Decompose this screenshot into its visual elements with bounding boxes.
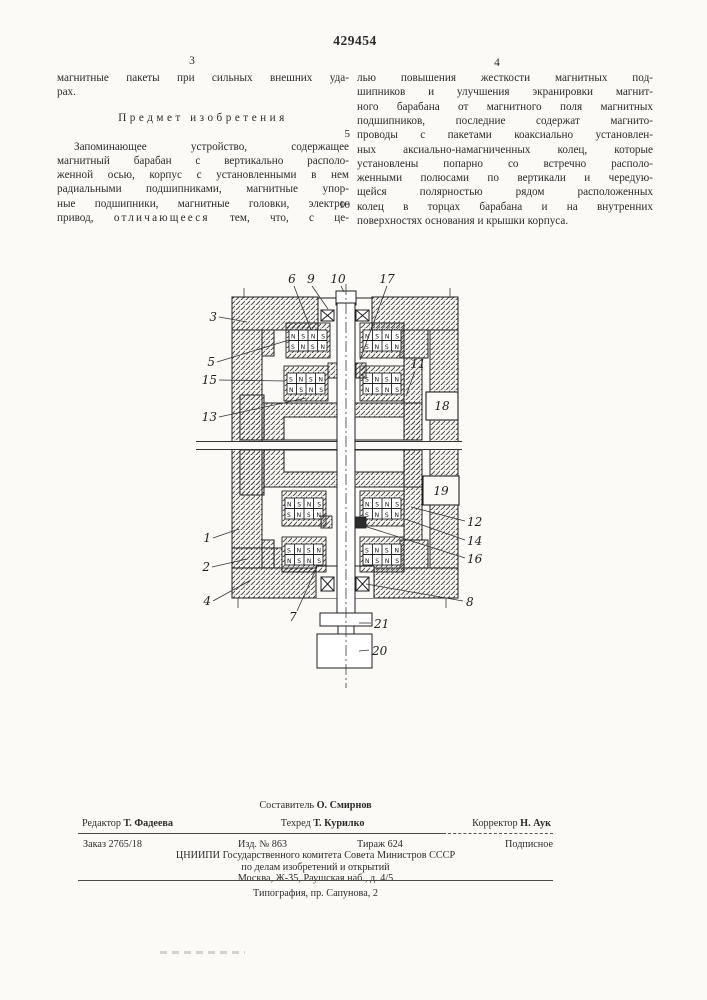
org-line-2: по делам изобретений и открытий <box>78 862 553 874</box>
text-line: колец в торцах барабана и на внутренних <box>357 200 653 214</box>
patent-number: 429454 <box>300 33 410 49</box>
page-number-right: 4 <box>485 57 509 69</box>
svg-text:19: 19 <box>433 484 449 498</box>
magnet-block: N S N S S N S N <box>360 323 404 358</box>
svg-text:11: 11 <box>410 357 425 371</box>
right-column: лью повышения жесткости магнитных под- ш… <box>357 71 653 231</box>
motor <box>317 634 372 668</box>
magnet-block: S N S N N S N S <box>360 537 404 572</box>
svg-text:17: 17 <box>379 272 395 286</box>
svg-text:6: 6 <box>288 272 296 286</box>
svg-text:S N S N: S N S N <box>287 548 321 555</box>
svg-text:S N S N: S N S N <box>365 377 399 384</box>
margin-line-number-10: 10 <box>330 199 350 211</box>
rule-top-solid <box>78 833 443 834</box>
svg-text:21: 21 <box>373 617 389 631</box>
svg-text:16: 16 <box>467 552 483 566</box>
patent-figure: N S N S S N S N N S N S S N S N S N S N … <box>190 265 502 695</box>
text-line: женной осью, корпус с установленными в н… <box>57 168 349 182</box>
compiler-line: Составитель О. Смирнов <box>78 800 553 812</box>
text-line: магнитный барабан с вертикально располо- <box>57 154 349 168</box>
svg-text:20: 20 <box>371 644 388 658</box>
emphasized-word: отличающееся <box>114 212 210 224</box>
magnet-block: N S N S S N S N <box>360 491 404 526</box>
text-line: Запоминающее устройство, содержащее <box>57 140 349 154</box>
section-heading: Предмет изобретения <box>57 111 349 125</box>
patent-page: { "page": { "patent_number": "429454", "… <box>0 0 707 1000</box>
scan-artifact <box>160 951 245 954</box>
text-segment: привод, <box>57 212 114 224</box>
magnet-block: N S N S S N S N <box>282 491 326 526</box>
svg-text:8: 8 <box>466 595 474 609</box>
text-line: лью повышения жесткости магнитных под- <box>357 71 653 85</box>
compiler-name: О. Смирнов <box>317 800 372 811</box>
svg-text:14: 14 <box>467 534 482 548</box>
text-line: рах. <box>57 85 349 99</box>
text-line: подшипников, последние содержат магнито- <box>357 114 653 128</box>
svg-text:3: 3 <box>209 310 217 324</box>
svg-text:S N S N: S N S N <box>291 344 325 351</box>
page-number-left: 3 <box>180 55 204 67</box>
magnet-block: N S N S S N S N <box>286 323 330 358</box>
text-line: магнитные пакеты при сильных внешних уда… <box>57 71 349 85</box>
bearing-icon <box>356 310 369 321</box>
rule-bottom <box>78 880 553 881</box>
svg-text:18: 18 <box>434 399 450 413</box>
text-line: установлены попарно со встречно располо- <box>357 157 653 171</box>
magnet-block: S N S N N S N S <box>284 366 328 401</box>
svg-text:7: 7 <box>289 610 297 624</box>
text-line: женными полюсами по вертикали и чередую- <box>357 171 653 185</box>
left-column: магнитные пакеты при сильных внешних уда… <box>57 71 349 231</box>
svg-text:S N S N: S N S N <box>365 512 399 519</box>
svg-text:5: 5 <box>207 355 215 369</box>
techred: Техред Т. Курилко <box>281 818 365 830</box>
bearing-icon <box>321 577 334 591</box>
rule-top-dashed <box>443 833 553 834</box>
svg-text:13: 13 <box>202 410 218 424</box>
org-line-1: ЦНИИПИ Государственного комитета Совета … <box>78 850 553 862</box>
svg-text:2: 2 <box>201 560 210 574</box>
text-line: проводы с пакетами коаксиально установле… <box>357 128 653 142</box>
bearing-icon <box>321 310 334 321</box>
svg-text:10: 10 <box>330 272 346 286</box>
printer-line: Типография, пр. Сапунова, 2 <box>78 888 553 900</box>
svg-text:15: 15 <box>202 373 217 387</box>
svg-text:S N S N: S N S N <box>365 344 399 351</box>
svg-text:1: 1 <box>203 531 211 545</box>
magnet-block: S N S N N S N S <box>282 537 326 572</box>
text-line: радиальными подшипниками, магнитные упор… <box>57 182 349 196</box>
section-break <box>196 442 462 450</box>
magnet-block: S N S N N S N S <box>360 366 404 401</box>
text-line: ные подшипники, магнитные головки, элект… <box>57 197 349 211</box>
text-line: ных аксиально-намагниченных колец, котор… <box>357 143 653 157</box>
svg-text:S N S N: S N S N <box>365 548 399 555</box>
text-line: привод, отличающееся тем, что, с це- <box>57 211 349 225</box>
editor: Редактор Т. Фадеева <box>82 818 173 830</box>
corrector: Корректор Н. Аук <box>472 818 551 830</box>
svg-text:12: 12 <box>467 515 482 529</box>
text-segment: тем, что, с це- <box>210 212 349 224</box>
compiler-label: Составитель <box>259 800 314 811</box>
org-line-3: Москва, Ж-35, Раушская наб., д. 4/5 <box>78 873 553 885</box>
text-line: ного барабана от магнитного поля магнитн… <box>357 100 653 114</box>
text-line: щейся полярностью рядом расположенных <box>357 185 653 199</box>
svg-text:4: 4 <box>202 594 211 608</box>
svg-text:S N S N: S N S N <box>289 377 323 384</box>
margin-line-number-5: 5 <box>336 128 350 140</box>
text-line: шипников и улучшения экранировки магнит- <box>357 85 653 99</box>
text-line: поверхностях основания и крышки корпуса. <box>357 214 653 228</box>
staff-line: Редактор Т. Фадеева Техред Т. Курилко Ко… <box>82 818 551 830</box>
svg-text:9: 9 <box>307 272 315 286</box>
svg-text:S N S N: S N S N <box>287 512 321 519</box>
